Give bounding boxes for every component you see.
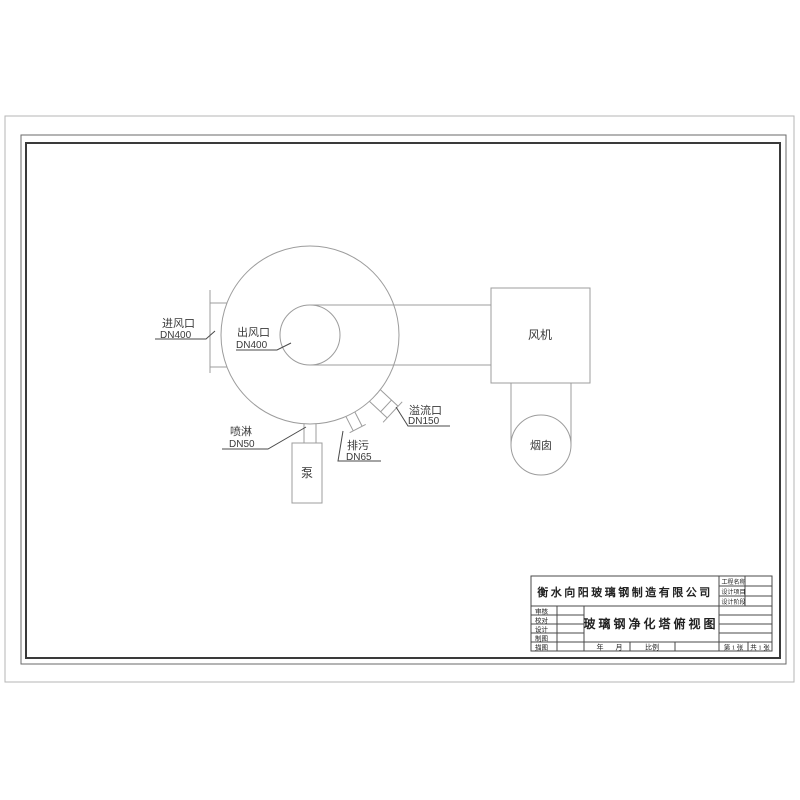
overflow-label: 溢流口	[409, 403, 442, 417]
field-design-item: 设计项目	[722, 588, 746, 596]
scale-label: 比例	[645, 643, 659, 652]
company-name: 衡水向阳玻璃钢制造有限公司	[537, 585, 713, 599]
sheet-total: 共 1 张	[750, 643, 770, 652]
chimney-label: 烟囱	[530, 438, 552, 452]
outlet-size: DN400	[236, 340, 268, 351]
field-design-stage: 设计阶段	[722, 598, 746, 606]
drawing-title: 玻璃钢净化塔俯视图	[583, 616, 718, 631]
field-project-name: 工程名称	[722, 578, 746, 586]
spray-size: DN50	[229, 439, 255, 450]
outlet-label: 出风口	[237, 325, 270, 339]
fan-label: 风机	[528, 328, 552, 342]
spray-label: 喷淋	[230, 425, 252, 438]
field-review: 审核	[535, 607, 549, 616]
field-tracing: 描图	[535, 643, 548, 652]
field-drafting: 制图	[535, 634, 548, 643]
drain-size: DN65	[346, 452, 372, 463]
drawing-canvas: 风机 烟囱 泵 进风口 DN400 出风口 DN400 喷淋 DN50 排污 D…	[0, 0, 800, 800]
inlet-label: 进风口	[162, 317, 195, 330]
date-month-label: 月	[616, 644, 623, 652]
drain-label: 排污	[347, 438, 369, 452]
sheet-number: 第 1 张	[724, 643, 744, 652]
inlet-size: DN400	[160, 330, 192, 341]
pump-label: 泵	[301, 466, 313, 480]
field-check: 校对	[535, 616, 549, 625]
field-design: 设计	[535, 625, 549, 634]
date-year-label: 年	[597, 643, 604, 652]
overflow-size: DN150	[408, 416, 440, 427]
